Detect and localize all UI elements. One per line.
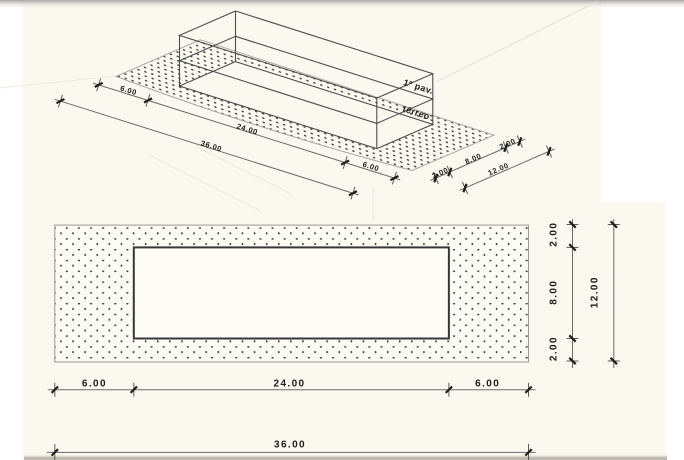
svg-text:24.00: 24.00 <box>273 378 305 389</box>
svg-text:6.00: 6.00 <box>82 378 107 389</box>
svg-text:2.00: 2.00 <box>549 336 560 361</box>
svg-text:36.00: 36.00 <box>274 440 306 451</box>
svg-text:12.00: 12.00 <box>590 276 601 308</box>
svg-text:6.00: 6.00 <box>475 378 500 389</box>
svg-text:8.00: 8.00 <box>549 280 560 305</box>
svg-text:2.00: 2.00 <box>549 222 560 247</box>
